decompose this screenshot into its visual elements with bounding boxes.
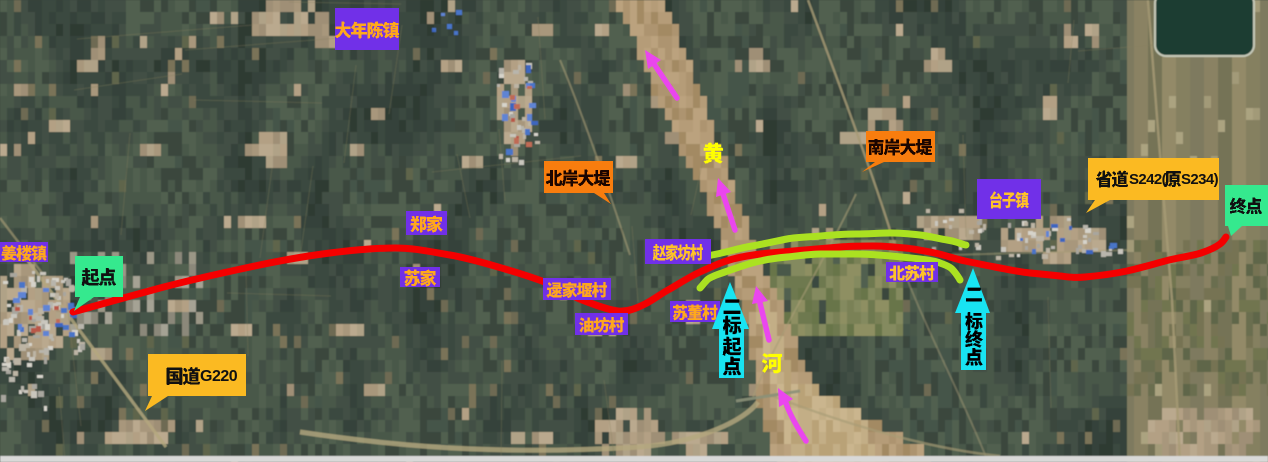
svg-text:G220: G220 xyxy=(200,368,238,385)
svg-text:S234): S234) xyxy=(1181,171,1219,188)
svg-text:S242(: S242( xyxy=(1129,171,1167,188)
